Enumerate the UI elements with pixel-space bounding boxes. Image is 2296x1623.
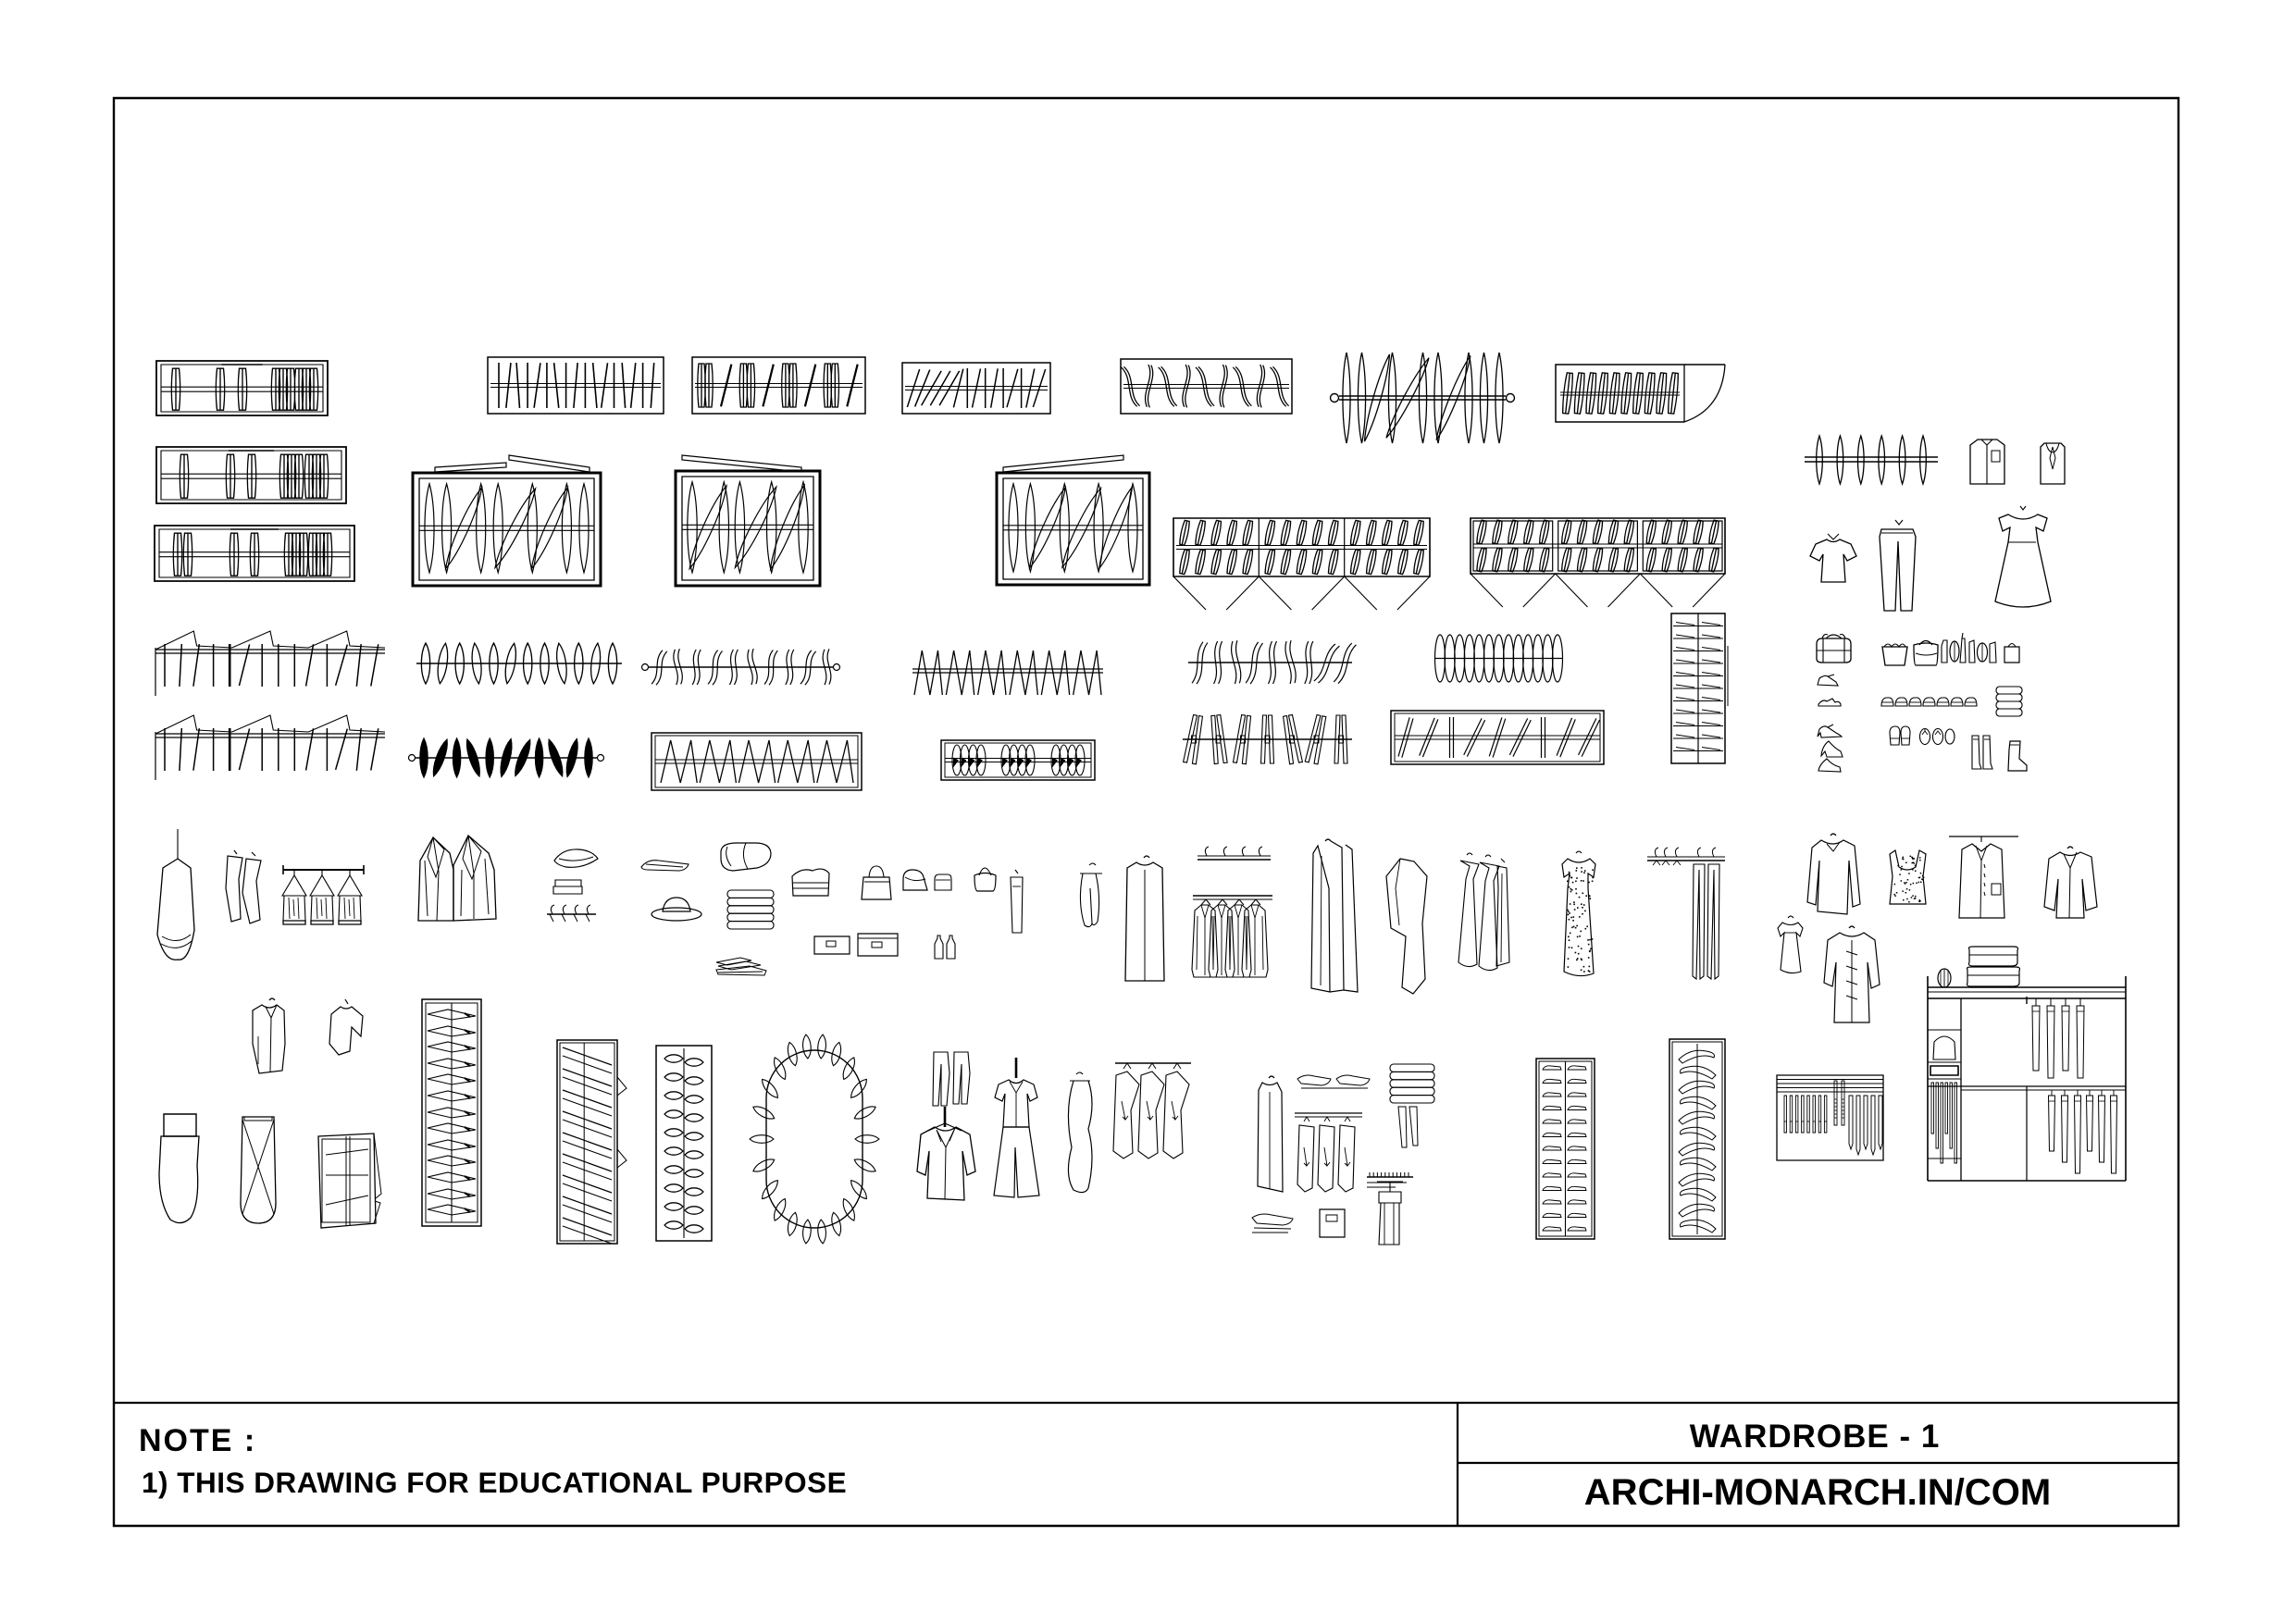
svg-text:1) THIS DRAWING FOR EDUCATIONA: 1) THIS DRAWING FOR EDUCATIONAL PURPOSE [142, 1466, 847, 1499]
svg-text:WARDROBE - 1: WARDROBE - 1 [1690, 1419, 1941, 1455]
svg-text:ARCHI-MONARCH.IN/COM: ARCHI-MONARCH.IN/COM [1584, 1472, 2051, 1513]
svg-text:NOTE :: NOTE : [139, 1423, 256, 1458]
